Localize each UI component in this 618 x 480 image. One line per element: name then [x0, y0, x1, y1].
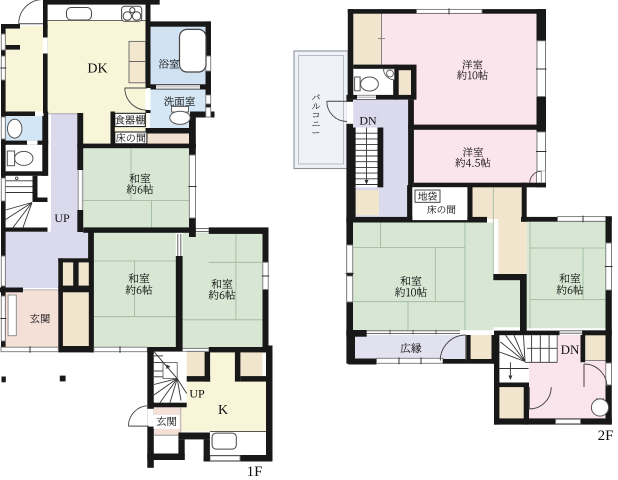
svg-text:DK: DK: [87, 61, 107, 76]
svg-text:2F: 2F: [598, 428, 614, 444]
svg-text:1F: 1F: [247, 464, 263, 480]
svg-text:UP: UP: [189, 387, 205, 401]
svg-text:UP: UP: [54, 211, 70, 225]
svg-text:DN: DN: [359, 114, 377, 128]
svg-text:K: K: [218, 403, 228, 418]
svg-text:DN: DN: [561, 342, 580, 357]
